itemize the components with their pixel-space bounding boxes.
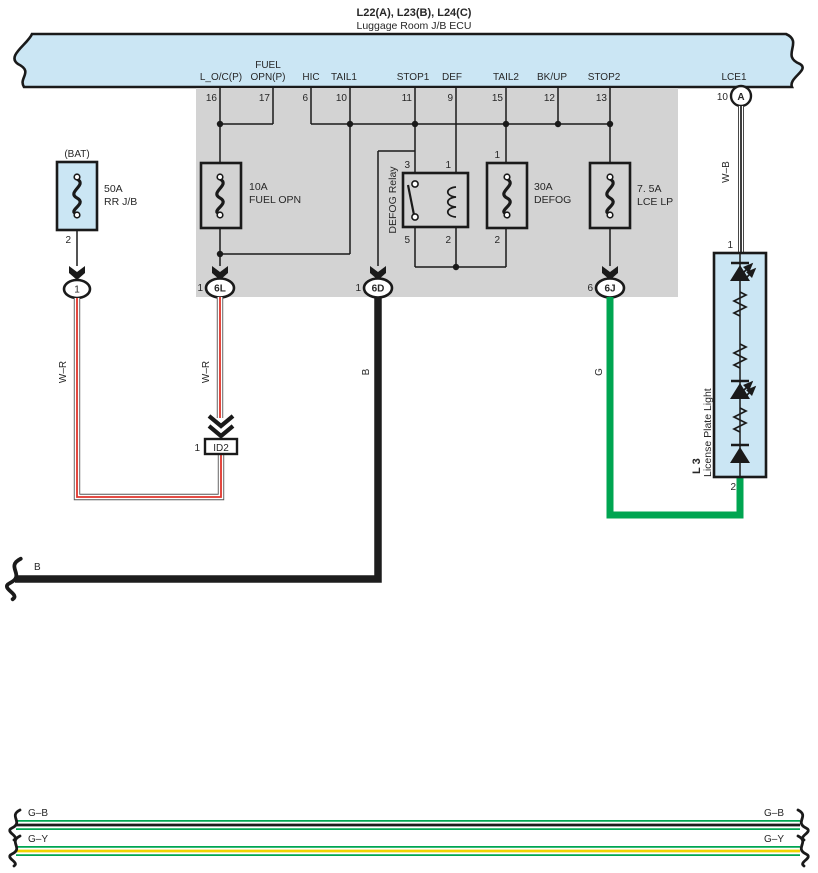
junction-dot <box>412 121 418 127</box>
connector-a-label: A <box>737 92 744 103</box>
pin-13: 13 <box>596 93 608 104</box>
wiring-diagram: L22(A), L23(B), L24(C) Luggage Room J/B … <box>0 0 818 873</box>
wire-w-r-6l: W–R <box>201 297 233 436</box>
wire-b-path <box>15 297 378 579</box>
wire-label-w-r: W–R <box>58 361 69 383</box>
fuse-rating: 7. 5A <box>637 183 662 195</box>
wire-w-b: W–B <box>721 106 741 253</box>
bat-label: (BAT) <box>64 149 89 160</box>
pin-label-stop2: STOP2 <box>588 72 621 83</box>
light-name: License Plate Light <box>702 388 714 477</box>
relay-contact <box>412 214 418 220</box>
wire-label-w-r: W–R <box>201 361 212 383</box>
relay-pin-5: 5 <box>404 235 410 246</box>
wire-outline <box>77 298 221 497</box>
fuse-name: LCE LP <box>637 196 673 208</box>
wire-label-b-end: B <box>34 562 41 573</box>
junction-dot <box>503 121 509 127</box>
connector-6l-pin: 1 <box>197 283 203 294</box>
pin-16: 16 <box>206 93 218 104</box>
connector-bat-1-label: 1 <box>74 285 80 296</box>
fuse-box <box>57 162 97 230</box>
wire-g-y: G–Y G–Y <box>10 834 809 866</box>
ecu-pin-numbers: 16 17 6 10 11 9 15 12 13 <box>206 93 608 104</box>
pin-10: 10 <box>336 93 348 104</box>
junction-dot <box>217 121 223 127</box>
connector-6j-pin: 6 <box>587 283 593 294</box>
pin-15: 15 <box>492 93 504 104</box>
wire-red-stripe <box>77 298 221 497</box>
fuse-name: RR J/B <box>104 196 137 208</box>
relay-pin-3: 3 <box>404 160 410 171</box>
light-pin-2: 2 <box>730 482 736 493</box>
pin-label-stop1: STOP1 <box>397 72 430 83</box>
connector-a-pin: 10 <box>717 92 729 103</box>
wire-label-b: B <box>361 368 372 375</box>
junction-dot <box>607 121 613 127</box>
ecu-subtitle: Luggage Room J/B ECU <box>357 20 472 32</box>
connector-6j-label: 6J <box>604 284 615 295</box>
pin-9: 9 <box>447 93 453 104</box>
pin-12: 12 <box>544 93 556 104</box>
fuse-rating: 50A <box>104 183 123 195</box>
wire-b: B B <box>7 297 378 599</box>
connector-lce1-a: A 10 <box>717 86 751 106</box>
wire-g-b: G–B G–B <box>10 808 809 840</box>
bat-pin-2: 2 <box>65 235 71 246</box>
wire-body <box>77 298 221 497</box>
id2-pin: 1 <box>194 443 200 454</box>
fuse-rating: 30A <box>534 181 553 193</box>
fuse-pin-1: 1 <box>494 150 500 161</box>
fuse-50a-rr-jb: (BAT) 50A RR J/B 2 <box>57 149 137 246</box>
relay-pin-1: 1 <box>445 160 451 171</box>
fuse-name: FUEL OPN <box>249 194 301 206</box>
pin-label-fuel-opn-p: OPN(P) <box>251 72 286 83</box>
junction-dot <box>555 121 561 127</box>
wire-label-g-b-right: G–B <box>764 808 784 819</box>
id2-label: ID2 <box>213 443 229 454</box>
ecu-title: L22(A), L23(B), L24(C) <box>357 7 472 19</box>
wire-label-g-b-left: G–B <box>28 808 48 819</box>
relay-name: DEFOG Relay <box>387 166 399 234</box>
relay-pin-2: 2 <box>445 235 451 246</box>
connector-arrow-icon <box>69 266 85 280</box>
fuse-rating: 10A <box>249 181 268 193</box>
fuse-pin-2: 2 <box>494 235 500 246</box>
license-plate-light: 1 L 3 License Plate Light 2 <box>691 240 766 493</box>
pin-label-def: DEF <box>442 72 462 83</box>
junction-dot <box>347 121 353 127</box>
wiring-diagram-page: L22(A), L23(B), L24(C) Luggage Room J/B … <box>0 0 818 873</box>
connector-6d-pin: 1 <box>355 283 361 294</box>
pin-6: 6 <box>302 93 308 104</box>
junction-dot <box>453 264 459 270</box>
wire-label-w-b: W–B <box>721 161 732 183</box>
relay-contact <box>412 181 418 187</box>
pin-label-bkup: BK/UP <box>537 72 567 83</box>
connector-6l-label: 6L <box>214 284 226 295</box>
pin-label-tail1: TAIL1 <box>331 72 357 83</box>
pin-17: 17 <box>259 93 271 104</box>
pin-label-lce1: LCE1 <box>721 72 746 83</box>
connector-6d-label: 6D <box>372 284 385 295</box>
pin-label-fuel: FUEL <box>255 60 281 71</box>
wire-label-g-y-left: G–Y <box>28 834 48 845</box>
fuse-name: DEFOG <box>534 194 571 206</box>
pin-label-hic: HIC <box>302 72 319 83</box>
wire-w-r-bat: W–R <box>58 298 221 497</box>
pin-label-l-oc-p: L_O/C(P) <box>200 72 242 83</box>
pin-11: 11 <box>402 93 413 104</box>
splice-id2: ID2 1 <box>194 439 237 454</box>
wire-label-g: G <box>594 368 605 376</box>
wire-label-g-y-right: G–Y <box>764 834 784 845</box>
junction-dot <box>217 251 223 257</box>
pin-label-tail2: TAIL2 <box>493 72 519 83</box>
light-pin-1: 1 <box>727 240 733 251</box>
